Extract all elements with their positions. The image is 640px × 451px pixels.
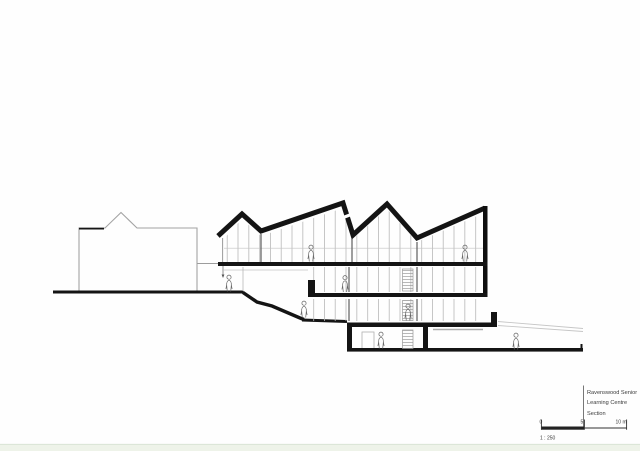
- section-drawing-canvas: Ravenswood Senior Learning Centre Sectio…: [0, 0, 640, 451]
- terrace-upstand: [491, 312, 497, 327]
- stair-stack: [403, 269, 414, 349]
- scale-tick-label-start: 0: [540, 420, 543, 426]
- scale-bar: 0 5 10 m 1 : 250: [540, 420, 628, 442]
- person-figure: [513, 333, 519, 349]
- footer-strip-fill: [0, 445, 640, 451]
- basement-left-wall: [347, 325, 352, 351]
- upper-floor-slab: [218, 262, 488, 266]
- stairs-level1: [403, 269, 414, 291]
- door-outline: [362, 332, 374, 349]
- drawing-sheet: Ravenswood Senior Learning Centre Sectio…: [0, 0, 640, 451]
- person-figure: [226, 275, 232, 291]
- level1-zone: [222, 267, 483, 292]
- ground-lines-right: [498, 322, 583, 332]
- basement-zone: [347, 325, 428, 351]
- scale-tick-label-mid: 5: [581, 420, 584, 426]
- stairs-level0: [403, 301, 414, 321]
- level-marker-arrow: [222, 275, 225, 279]
- stairs-basement: [403, 330, 414, 349]
- level1-floor-slab: [308, 293, 488, 297]
- existing-building-outline: [79, 213, 197, 292]
- level0-zone: [313, 299, 483, 321]
- title-block: Ravenswood Senior Learning Centre Sectio…: [584, 386, 638, 429]
- basement-right-wall: [423, 325, 428, 351]
- basement-ground-line: [347, 348, 583, 352]
- scale-bar-solid-segment: [541, 427, 584, 430]
- scale-ratio-label: 1 : 250: [540, 436, 556, 442]
- project-name-line1: Ravenswood Senior: [587, 390, 637, 396]
- person-figure: [301, 301, 307, 317]
- right-end-wall: [483, 206, 488, 297]
- person-figure: [378, 332, 384, 348]
- glazing-level1: [313, 267, 483, 292]
- scale-tick-label-end: 10 m: [616, 420, 627, 426]
- project-name-line2: Learning Centre: [587, 400, 627, 406]
- level0-floor-slab: [347, 323, 492, 328]
- footer-strip: [0, 444, 640, 451]
- glazing-level0: [313, 299, 483, 321]
- drawing-title: Section: [587, 411, 606, 417]
- ground-line-end-tick: [581, 344, 583, 351]
